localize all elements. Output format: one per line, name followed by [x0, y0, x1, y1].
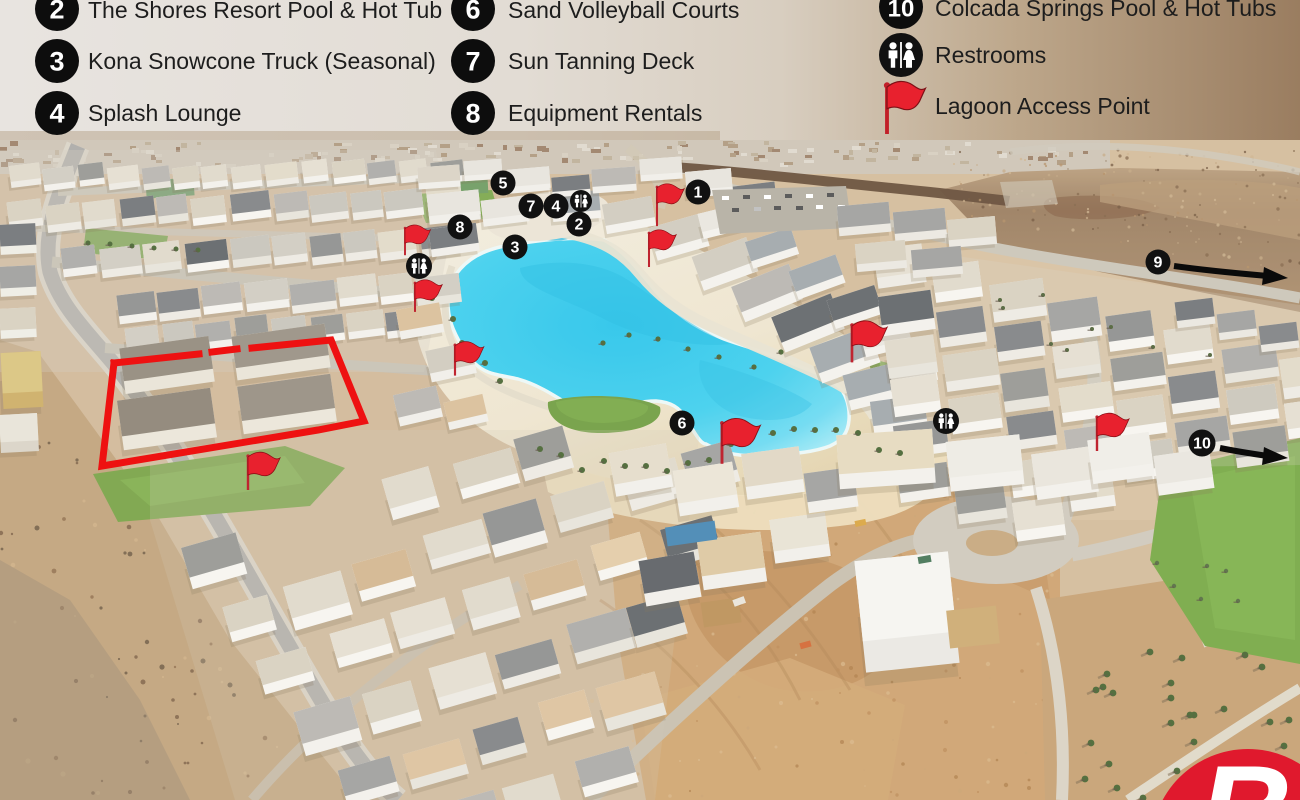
svg-text:Splash Lounge: Splash Lounge — [88, 100, 241, 126]
svg-text:3: 3 — [49, 47, 64, 77]
svg-text:Kona Snowcone Truck (Seasonal): Kona Snowcone Truck (Seasonal) — [88, 48, 436, 74]
svg-text:2: 2 — [575, 217, 584, 234]
svg-text:2: 2 — [49, 0, 64, 25]
svg-text:Equipment Rentals: Equipment Rentals — [508, 100, 702, 126]
svg-text:10: 10 — [888, 0, 915, 23]
svg-text:7: 7 — [527, 199, 536, 216]
svg-text:Sand Volleyball Courts: Sand Volleyball Courts — [508, 0, 739, 23]
svg-text:7: 7 — [465, 47, 480, 77]
svg-text:Lagoon Access Point: Lagoon Access Point — [935, 93, 1150, 119]
svg-text:8: 8 — [456, 220, 465, 237]
svg-text:Sun Tanning Deck: Sun Tanning Deck — [508, 48, 695, 74]
svg-text:8: 8 — [465, 99, 480, 129]
svg-text:3: 3 — [511, 240, 520, 257]
svg-text:5: 5 — [499, 176, 508, 193]
svg-text:9: 9 — [1154, 255, 1163, 272]
svg-text:4: 4 — [49, 99, 64, 129]
svg-text:1: 1 — [694, 185, 703, 202]
svg-text:4: 4 — [552, 199, 561, 216]
svg-text:B: B — [1198, 738, 1292, 800]
svg-text:Restrooms: Restrooms — [935, 42, 1046, 68]
svg-text:6: 6 — [465, 0, 480, 25]
svg-text:Colcada Springs Pool & Hot Tub: Colcada Springs Pool & Hot Tubs — [935, 0, 1276, 21]
svg-text:10: 10 — [1193, 436, 1211, 453]
svg-text:The Shores Resort Pool & Hot T: The Shores Resort Pool & Hot Tub — [88, 0, 442, 23]
svg-text:6: 6 — [678, 416, 687, 433]
